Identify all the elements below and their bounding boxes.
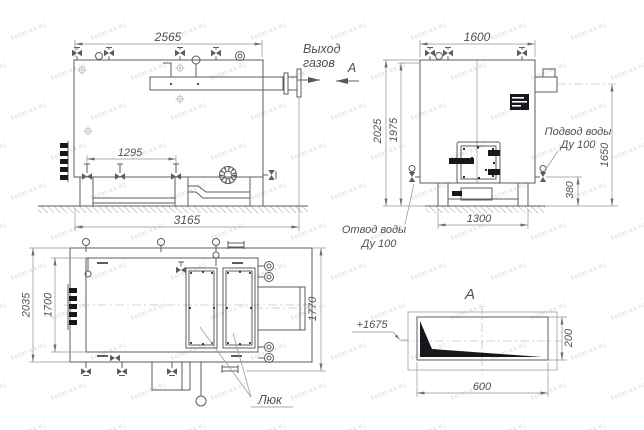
- dimension-1295: 1295: [87, 147, 176, 170]
- drain-valve-icon: [158, 239, 165, 253]
- bracket-icon: [163, 63, 171, 77]
- drawer-handle: [452, 191, 462, 196]
- valve-icon: [117, 362, 127, 376]
- nozzle-icon: [258, 273, 274, 282]
- drain-valve-icon: [196, 362, 206, 406]
- side-valve-left: [409, 166, 420, 183]
- nameplate: [510, 94, 529, 110]
- ash-drawer: [461, 188, 492, 200]
- gas-outlet-label-line2: газов: [303, 56, 335, 70]
- dimension-1975: 1975: [388, 63, 420, 206]
- section-marker-label: А: [347, 61, 356, 75]
- dim-380-label: 380: [564, 181, 576, 199]
- flanged-opening-front: [220, 167, 237, 184]
- valve-icon: [175, 48, 185, 61]
- dim-200-label: 200: [563, 328, 575, 348]
- valve-icon: [104, 48, 114, 61]
- door-latch: [488, 150, 500, 156]
- drain-valve-icon: [192, 56, 200, 77]
- soot-deposit-profile: [420, 321, 542, 357]
- hatch-cover-1: [186, 268, 217, 348]
- flue-duct-front: [150, 56, 301, 97]
- dimension-200: 200: [548, 317, 575, 360]
- center-mark-icon: [175, 94, 185, 104]
- dim-1295-label: 1295: [118, 147, 143, 159]
- center-mark-icon: [175, 63, 185, 73]
- technical-drawing: 2565: [0, 0, 644, 430]
- ground-side: [383, 206, 618, 213]
- dim-1300-label: 1300: [467, 213, 492, 225]
- flue-stub-side: [535, 69, 616, 92]
- gas-outlet-callout: Выход газов: [297, 42, 341, 80]
- nozzle-icon: [258, 354, 274, 363]
- valve-icon: [176, 262, 186, 273]
- hatch-cover-2: [223, 268, 255, 348]
- flange-icon: [222, 365, 238, 373]
- section-view-a: А +1675 200 600: [352, 286, 575, 397]
- nozzle-icon: [236, 52, 245, 61]
- burner-flange-plan: [68, 284, 77, 330]
- handwheel-icon: [409, 166, 415, 172]
- dimension-380: 380: [546, 177, 582, 206]
- boiler-body-side: [420, 60, 535, 183]
- plan-view: Люк 2035 1700 1770: [21, 239, 327, 408]
- drain-valve-icon: [83, 239, 90, 253]
- dim-1770-label: 1770: [307, 296, 319, 321]
- gas-outlet-label-line1: Выход: [303, 42, 341, 56]
- valve-icon: [110, 355, 120, 361]
- dim-1700-label: 1700: [43, 292, 55, 317]
- dim-600-label: 600: [473, 381, 492, 393]
- legs-front: [80, 177, 263, 206]
- center-mark-icon: [77, 65, 87, 75]
- section-title: А: [464, 286, 475, 303]
- side-nozzles-plan: [258, 262, 274, 363]
- burner-flange-front: [60, 141, 68, 182]
- elevation-callout: +1675: [352, 319, 408, 340]
- nozzle-icon: [258, 262, 274, 271]
- drain-valve-icon: [213, 252, 219, 266]
- valve-icon: [443, 48, 453, 61]
- dim-2025-label: 2025: [372, 118, 384, 144]
- bottom-extension-plan: [152, 362, 206, 406]
- dim-2565-label: 2565: [154, 30, 182, 44]
- top-fittings-plan: [83, 239, 245, 253]
- hatch-label: Люк: [257, 393, 283, 407]
- dim-2035-label: 2035: [21, 292, 33, 318]
- dim-1650-label: 1650: [599, 142, 611, 167]
- valve-icon: [81, 362, 91, 376]
- dimension-1650: 1650: [599, 84, 612, 206]
- boiler-body-front: [74, 60, 263, 177]
- door-handle: [449, 158, 474, 164]
- side-valve-right: [535, 166, 546, 183]
- nozzle-icon: [258, 343, 274, 352]
- elevation-label: +1675: [357, 319, 389, 331]
- furnace-door: [449, 142, 500, 183]
- side-view: 1600: [342, 30, 618, 250]
- ground-front: [38, 206, 308, 213]
- section-marker: А: [336, 61, 359, 81]
- valve-icon: [263, 170, 276, 180]
- top-valves-side: [425, 48, 527, 61]
- drawing-sheet: kotel-kv.kzkotel-kv.kzkotel-kv.kzkotel-k…: [0, 0, 644, 430]
- valve-icon: [167, 362, 177, 376]
- water-outlet-label-line1: Отвод воды: [342, 224, 406, 236]
- valve-icon: [211, 48, 221, 61]
- water-outlet-label-line2: Ду 100: [360, 238, 398, 250]
- water-inlet-label-line2: Ду 100: [559, 139, 597, 151]
- dim-3165-label: 3165: [174, 213, 201, 227]
- front-view: 2565: [38, 30, 359, 231]
- handwheel-icon: [96, 53, 103, 60]
- dimension-600: 600: [417, 362, 548, 397]
- water-outlet-callout: Отвод воды Ду 100: [342, 184, 414, 250]
- valve-icon: [517, 48, 527, 61]
- drain-valve-icon: [213, 239, 220, 253]
- water-inlet-label-line1: Подвод воды: [545, 126, 612, 138]
- valve-icon: [72, 48, 82, 61]
- center-mark-icon: [83, 126, 93, 136]
- top-valves-front: [72, 48, 245, 61]
- valve-icon: [425, 48, 435, 61]
- dim-1975-label: 1975: [388, 117, 400, 142]
- door-latch: [488, 169, 500, 175]
- handwheel-icon: [436, 53, 443, 60]
- legs-side: [438, 183, 528, 206]
- inner-fittings-plan: [85, 252, 243, 277]
- dim-1600-label: 1600: [464, 30, 491, 44]
- handwheel-icon: [540, 166, 546, 172]
- flue-duct-plan: [254, 287, 312, 330]
- bottom-fittings-plan: [81, 355, 242, 376]
- bottom-valves-front: [82, 164, 276, 180]
- dimension-2565: 2565: [75, 30, 262, 57]
